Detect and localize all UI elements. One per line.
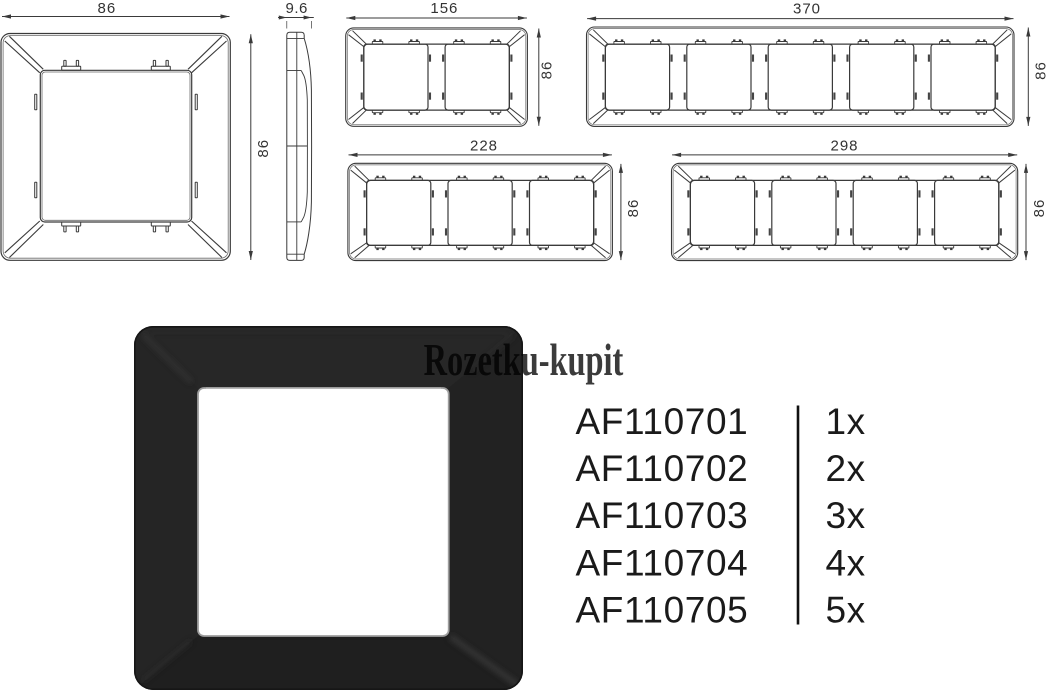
svg-text:1x: 1x: [826, 401, 866, 442]
svg-text:86: 86: [1032, 61, 1046, 80]
svg-text:156: 156: [430, 0, 458, 17]
svg-text:AF110704: AF110704: [576, 542, 749, 583]
svg-text:86: 86: [1031, 199, 1046, 218]
svg-text:AF110705: AF110705: [576, 589, 749, 630]
svg-text:86: 86: [255, 139, 272, 158]
svg-text:2x: 2x: [826, 448, 866, 489]
svg-text:298: 298: [830, 137, 858, 154]
svg-text:228: 228: [470, 137, 498, 154]
svg-text:86: 86: [539, 61, 556, 80]
svg-text:9.6: 9.6: [286, 0, 308, 17]
svg-text:86: 86: [625, 199, 642, 218]
svg-text:AF110703: AF110703: [576, 495, 749, 536]
svg-text:AF110701: AF110701: [576, 401, 749, 442]
svg-text:3x: 3x: [826, 495, 866, 536]
svg-text:370: 370: [793, 0, 821, 17]
svg-text:Rozetku-kupit: Rozetku-kupit: [424, 336, 624, 385]
svg-text:5x: 5x: [826, 589, 866, 630]
svg-text:AF110702: AF110702: [576, 448, 749, 489]
svg-text:86: 86: [98, 0, 117, 17]
svg-text:4x: 4x: [826, 542, 866, 583]
